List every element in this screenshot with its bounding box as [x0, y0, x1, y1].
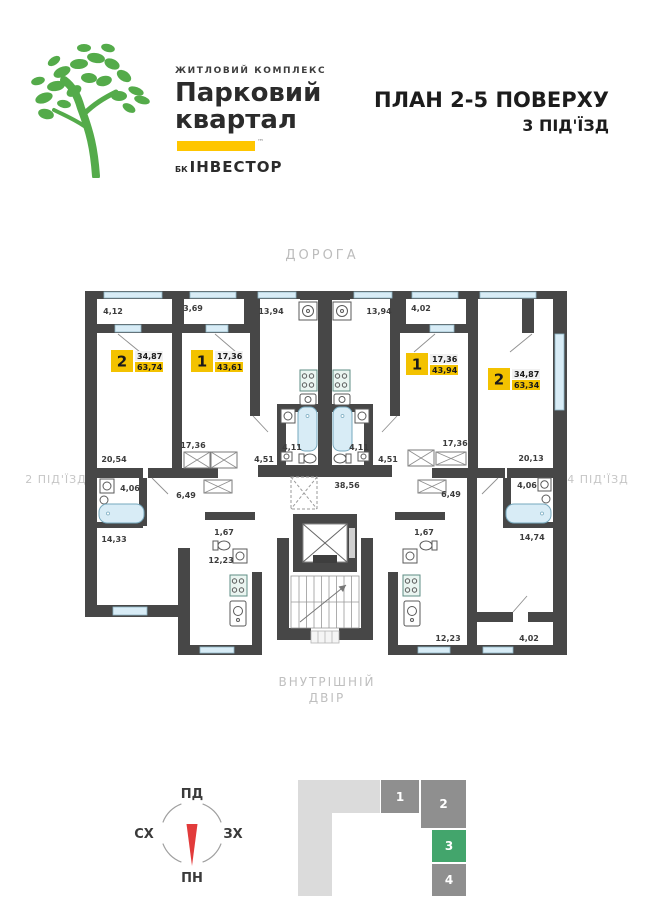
compass-north: ПН [181, 871, 203, 886]
apartment-total-area: 43,94 [432, 366, 458, 375]
stove-icon [403, 575, 420, 596]
washing-machine-icon [281, 409, 295, 423]
washing-machine-icon [233, 549, 247, 563]
entrance-block-3[interactable]: 3 [432, 830, 466, 862]
entrance-4-label: 4 ПІД'ЇЗД [567, 473, 629, 486]
wardrobe-icon [436, 452, 466, 465]
boiler-icon [333, 302, 351, 320]
wardrobe-icon [408, 450, 434, 466]
entrance-block-4[interactable]: 4 [432, 864, 466, 896]
room-area-label: 3,69 [183, 304, 203, 313]
sink-icon [404, 601, 420, 626]
logo-text: ЖИТЛОВИЙ КОМПЛЕКС Парковий квартал ™ БКІ… [175, 66, 365, 176]
entrance-block-1[interactable]: 1 [381, 780, 419, 813]
entrance-block-label: 2 [439, 797, 447, 811]
room-area-label: 4,51 [378, 455, 398, 464]
shaft-dashed [291, 477, 317, 509]
entrance-block-label: 1 [396, 790, 404, 804]
washing-machine-icon [403, 549, 417, 563]
stairs [291, 576, 359, 628]
room-area-label: 4,06 [120, 484, 140, 493]
entrance-block-label: 4 [445, 873, 453, 887]
apartment-total-area: 63,34 [514, 381, 540, 390]
compass: ПД СХ ЗХ ПН [120, 768, 260, 898]
plan-title-line1: ПЛАН 2-5 ПОВЕРХУ [374, 88, 609, 112]
logo-name-line1: Парковий [175, 80, 365, 107]
wardrobe-icon [184, 452, 210, 468]
room-area-label: 17,36 [180, 441, 206, 450]
toilet-icon [420, 541, 437, 550]
logo-subtitle: ЖИТЛОВИЙ КОМПЛЕКС [175, 66, 365, 76]
room-area-label: 4,02 [411, 304, 431, 313]
plan-title-line2: 3 ПІД'ЇЗД [374, 116, 609, 135]
room-area-label: 4,06 [517, 481, 537, 490]
room-area-label: 4,51 [254, 455, 274, 464]
stove-icon [300, 370, 317, 391]
sink-icon [334, 394, 350, 405]
apartment-number: 2 [117, 353, 127, 371]
room-area-label: 14,33 [101, 535, 126, 544]
apartment-rooms-area: 17,36 [217, 352, 243, 361]
sink-icon [300, 394, 316, 405]
room-area-label: 4,11 [349, 443, 369, 452]
sink-icon [358, 452, 369, 461]
floor-plan: ДОРОГА ВНУТРІШНІЙ ДВІР 2 ПІД'ЇЗД 4 ПІД'Ї… [0, 230, 650, 730]
page: ЖИТЛОВИЙ КОМПЛЕКС Парковий квартал ™ БКІ… [0, 0, 650, 918]
room-area-label: 13,94 [258, 307, 284, 316]
compass-south: ПД [181, 787, 203, 802]
apartment-total-area: 63,74 [137, 363, 163, 372]
room-area-label: 4,02 [519, 634, 539, 643]
stove-icon [230, 575, 247, 596]
apartment-badge: 117,3643,94 [406, 353, 458, 375]
apartment-total-area: 43,61 [217, 363, 243, 372]
room-area-label: 1,67 [214, 528, 234, 537]
apartment-rooms-area: 34,87 [514, 370, 539, 379]
room-area-label: 14,74 [519, 533, 545, 542]
elevator [293, 514, 357, 572]
sink-icon [281, 452, 292, 461]
room-area-label: 12,23 [435, 634, 460, 643]
plan-title: ПЛАН 2-5 ПОВЕРХУ 3 ПІД'ЇЗД [374, 88, 609, 135]
room-area-label: 1,67 [414, 528, 434, 537]
room-area-label: 13,94 [366, 307, 392, 316]
room-area-label: 6,49 [441, 490, 461, 499]
room-area-label: 38,56 [334, 481, 360, 490]
developer-prefix: БК [175, 165, 188, 174]
apartment-number: 1 [197, 353, 207, 371]
room-area-label: 6,49 [176, 491, 196, 500]
washing-machine-icon [355, 409, 369, 423]
room-area-label: 20,13 [518, 454, 543, 463]
courtyard-label-line2: ДВІР [309, 691, 345, 705]
room-area-label: 20,54 [101, 455, 127, 464]
boiler-icon [299, 302, 317, 320]
road-label: ДОРОГА [285, 248, 358, 263]
room-area-label: 17,36 [442, 439, 468, 448]
sink-icon [100, 496, 108, 504]
trademark-symbol: ™ [257, 138, 264, 146]
toilet-icon [299, 454, 316, 463]
wardrobe-icon [211, 452, 237, 468]
sink-icon [230, 601, 246, 626]
logo-tree-icon [24, 36, 164, 178]
entrance-2-label: 2 ПІД'ЇЗД [25, 473, 87, 486]
entrance-porch [311, 631, 339, 643]
compass-needle [187, 824, 198, 866]
room-area-label: 4,11 [282, 443, 302, 452]
apartment-number: 1 [412, 356, 422, 374]
building-outline-horizontal [298, 780, 380, 813]
apartment-badge: 117,3643,61 [191, 350, 243, 372]
room-area-label: 4,12 [103, 307, 123, 316]
courtyard-label-line1: ВНУТРІШНІЙ [278, 674, 375, 689]
wardrobe-icon [204, 480, 232, 493]
entrance-block-2[interactable]: 2 [421, 780, 466, 828]
bathtub-icon [99, 504, 144, 523]
apartment-badge: 234,8763,34 [488, 368, 540, 390]
developer-name: ІНВЕСТОР [190, 158, 283, 176]
bathtub-icon [506, 504, 551, 523]
apartment-rooms-area: 17,36 [432, 355, 458, 364]
washing-machine-icon [538, 478, 551, 491]
entrance-block-label: 3 [445, 839, 453, 853]
sink-icon [542, 495, 550, 503]
apartment-rooms-area: 34,87 [137, 352, 162, 361]
apartment-number: 2 [494, 371, 504, 389]
washing-machine-icon [100, 479, 114, 493]
compass-west: ЗХ [223, 827, 242, 842]
logo-developer: БКІНВЕСТОР [175, 157, 365, 176]
apartment-badge: 234,8763,74 [111, 350, 163, 372]
building-position-indicator: 1234 [298, 780, 470, 896]
logo-yellow-bar [177, 141, 255, 151]
logo-name-line2: квартал [175, 107, 365, 134]
toilet-icon [334, 454, 351, 463]
room-area-label: 12,23 [208, 556, 233, 565]
toilet-icon [213, 541, 230, 550]
compass-east: СХ [134, 827, 154, 842]
stove-icon [333, 370, 350, 391]
